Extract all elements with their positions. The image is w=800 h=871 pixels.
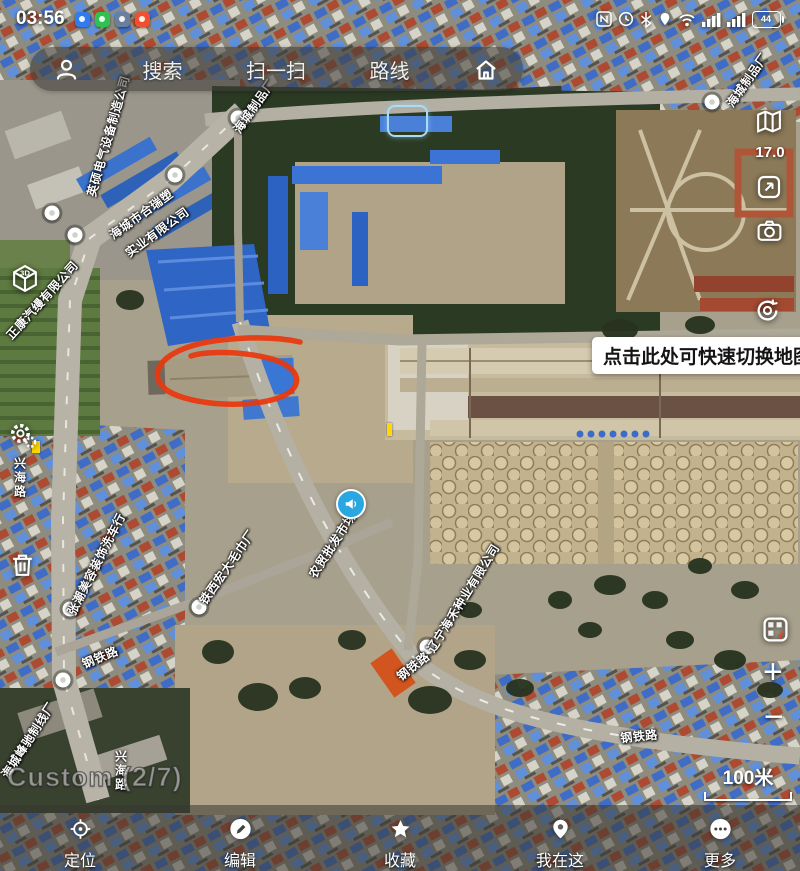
poi-dot[interactable] xyxy=(192,600,207,615)
app-icon xyxy=(135,12,150,27)
battery-percent: 44 xyxy=(761,14,771,24)
poi-dot[interactable] xyxy=(56,673,71,688)
yellow-marker xyxy=(387,423,392,436)
nav-item-edit[interactable]: 编辑 xyxy=(160,805,320,871)
settings-gear-icon xyxy=(8,421,37,449)
view-3d-button[interactable]: 3D xyxy=(11,264,39,293)
map-app-screen: 英硕电气设备制造公司 海城市合瑞塑 实业有限公司 海城制品厂 海城制品厂 正康汽… xyxy=(0,0,800,871)
zoom-out-button[interactable]: − xyxy=(764,700,784,734)
user-icon[interactable] xyxy=(54,57,79,81)
notification-app-icons xyxy=(75,12,150,27)
screenshot-icon xyxy=(756,174,782,200)
app-icon xyxy=(115,12,130,27)
star-icon xyxy=(387,818,414,840)
map-layers-button[interactable] xyxy=(755,109,783,134)
battery-icon: 44 xyxy=(752,11,785,28)
zoom-in-button[interactable]: + xyxy=(763,655,783,689)
camera-rotate-button[interactable] xyxy=(754,297,781,324)
nav-label: 收藏 xyxy=(384,847,416,871)
screenshot-button[interactable] xyxy=(756,174,782,200)
locate-icon xyxy=(67,818,94,840)
status-bar: 03:56 xyxy=(0,0,800,38)
pin-icon xyxy=(547,818,574,840)
switch-map-tooltip[interactable]: 点击此处可快速切换地图 xyxy=(592,337,800,374)
zoom-level: 17.0 xyxy=(750,144,790,161)
edit-icon xyxy=(227,818,254,840)
map-switch-button[interactable] xyxy=(762,616,789,643)
nav-item-more[interactable]: 更多 xyxy=(640,805,800,871)
poi-dot[interactable] xyxy=(231,111,246,126)
clock-time: 03:56 xyxy=(16,8,65,30)
nav-item-here[interactable]: 我在这 xyxy=(480,805,640,871)
poi-dot[interactable] xyxy=(168,168,183,183)
nav-label: 定位 xyxy=(64,847,96,871)
poi-dot[interactable] xyxy=(63,602,78,617)
scan-button[interactable]: 扫一扫 xyxy=(246,55,306,84)
route-button[interactable]: 路线 xyxy=(370,55,410,84)
status-icons: 44 xyxy=(596,11,785,28)
app-icon xyxy=(95,12,110,27)
more-icon xyxy=(707,818,734,840)
trash-icon xyxy=(9,551,36,578)
poi-dot[interactable] xyxy=(420,640,435,655)
signal-icon xyxy=(702,12,721,27)
search-bar: 搜索 扫一扫 路线 xyxy=(30,47,523,91)
trash-button[interactable] xyxy=(9,551,36,578)
settings-button[interactable] xyxy=(8,421,37,449)
camera-rotate-icon xyxy=(754,297,781,324)
poi-dot[interactable] xyxy=(45,206,60,221)
cube-3d-icon: 3D xyxy=(11,264,39,293)
poi-dot[interactable] xyxy=(705,95,720,110)
camera-button[interactable] xyxy=(756,218,783,243)
nav-label: 编辑 xyxy=(224,847,256,871)
horn-icon xyxy=(344,497,358,511)
wifi-icon xyxy=(678,12,696,27)
svg-text:3D: 3D xyxy=(20,268,30,277)
map-layers-icon xyxy=(755,109,783,134)
nav-label: 我在这 xyxy=(536,847,584,871)
signal-icon xyxy=(727,12,746,27)
bottom-nav: 定位 编辑 收藏 我在这 更多 xyxy=(0,805,800,871)
camera-icon xyxy=(756,218,783,243)
app-icon xyxy=(75,12,90,27)
nav-item-favorites[interactable]: 收藏 xyxy=(320,805,480,871)
poi-dot[interactable] xyxy=(68,228,83,243)
map-highlight-box xyxy=(387,105,428,137)
nav-item-locate[interactable]: 定位 xyxy=(0,805,160,871)
nfc-icon xyxy=(596,11,612,27)
clock-icon xyxy=(618,11,634,27)
map-switch-icon xyxy=(762,616,789,643)
nav-label: 更多 xyxy=(704,847,736,871)
bluetooth-icon xyxy=(640,11,652,28)
home-icon[interactable] xyxy=(473,57,499,82)
announcement-marker[interactable] xyxy=(336,489,366,519)
search-button[interactable]: 搜索 xyxy=(143,55,183,84)
location-icon xyxy=(658,11,672,27)
